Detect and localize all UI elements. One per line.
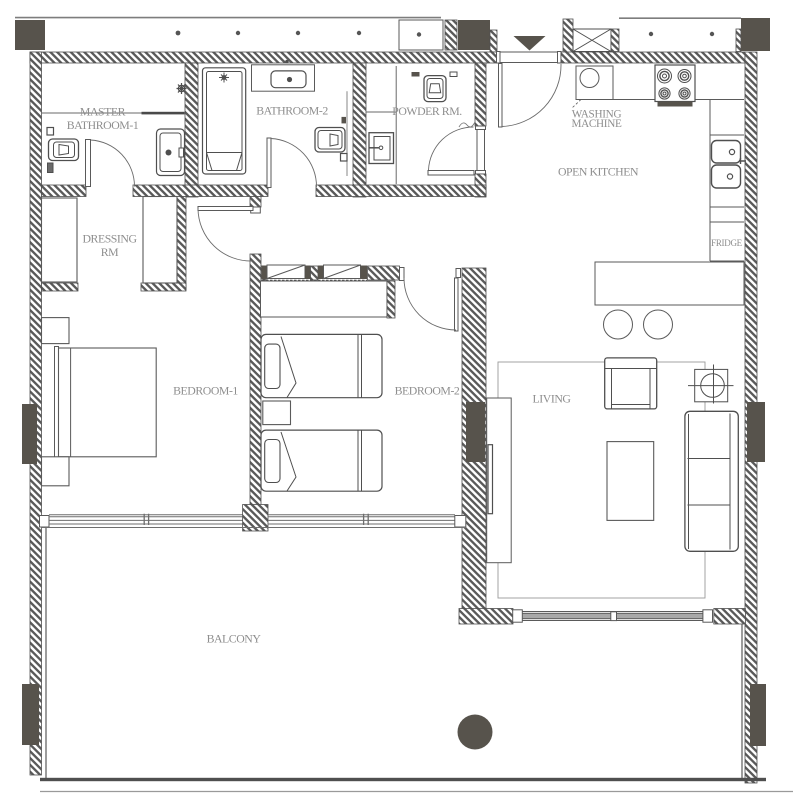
svg-text:OPEN KITCHEN: OPEN KITCHEN [558,165,639,179]
svg-text:BEDROOM-2: BEDROOM-2 [395,384,460,398]
svg-text:BALCONY: BALCONY [207,632,262,646]
svg-text:MACHINE: MACHINE [571,118,622,130]
svg-text:BEDROOM-1: BEDROOM-1 [173,384,238,398]
svg-text:BATHROOM-2: BATHROOM-2 [256,104,328,118]
svg-text:MASTER: MASTER [80,105,126,119]
svg-text:FRIDGE: FRIDGE [711,238,743,248]
svg-text:POWDER RM.: POWDER RM. [392,104,462,118]
svg-text:DRESSING: DRESSING [82,232,137,246]
svg-text:RM: RM [101,245,119,259]
svg-text:LIVING: LIVING [533,392,572,406]
svg-text:BATHROOM-1: BATHROOM-1 [67,118,139,132]
